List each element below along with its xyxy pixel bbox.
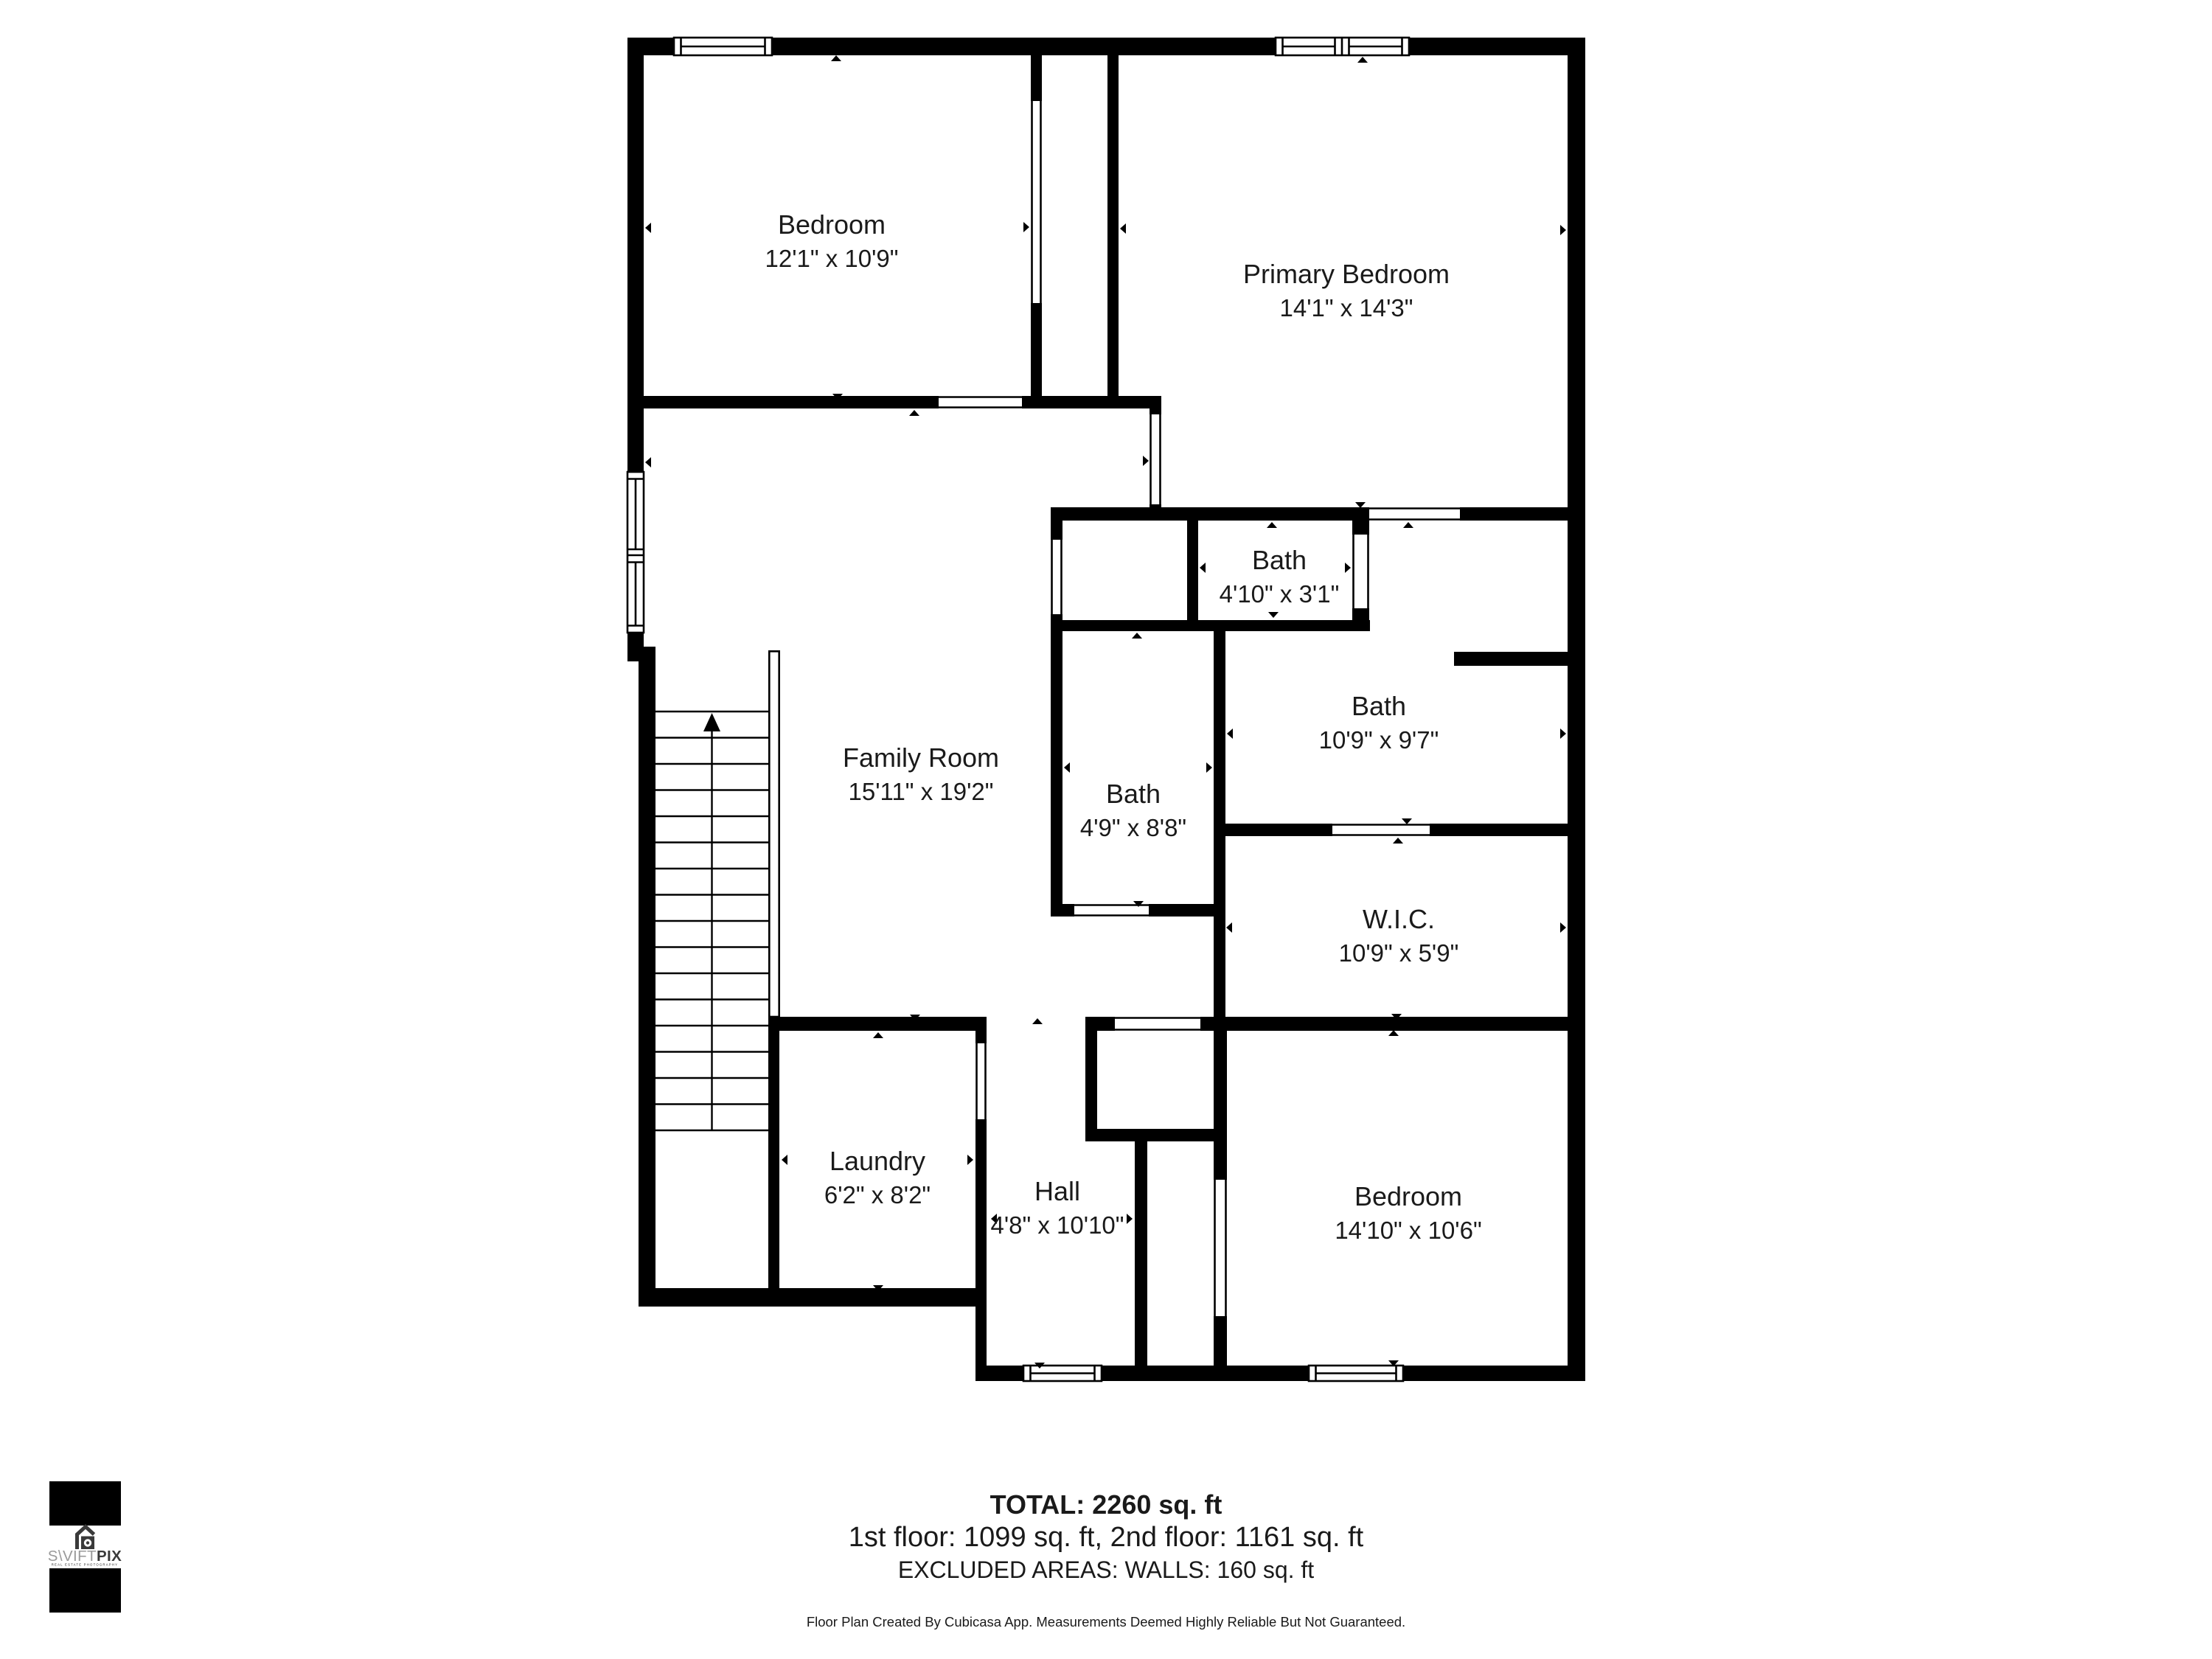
svg-text:1st floor: 1099 sq. ft, 2nd fl: 1st floor: 1099 sq. ft, 2nd floor: 1161 … <box>849 1522 1364 1553</box>
svg-text:15'11" x 19'2": 15'11" x 19'2" <box>849 778 994 805</box>
svg-text:Floor Plan Created By Cubicasa: Floor Plan Created By Cubicasa App. Meas… <box>807 1614 1405 1630</box>
svg-text:4'9" x 8'8": 4'9" x 8'8" <box>1080 814 1186 841</box>
svg-text:10'9" x 9'7": 10'9" x 9'7" <box>1319 726 1439 754</box>
svg-text:W.I.C.: W.I.C. <box>1363 904 1435 934</box>
svg-text:Laundry: Laundry <box>829 1146 925 1176</box>
svg-text:Bath: Bath <box>1352 691 1406 721</box>
svg-text:Family Room: Family Room <box>843 742 999 773</box>
svg-text:TOTAL: 2260 sq. ft: TOTAL: 2260 sq. ft <box>990 1489 1222 1520</box>
svg-text:Bath: Bath <box>1252 545 1307 575</box>
svg-text:4'8" x 10'10": 4'8" x 10'10" <box>991 1211 1124 1239</box>
svg-text:14'1" x 14'3": 14'1" x 14'3" <box>1280 294 1413 321</box>
svg-text:Primary Bedroom: Primary Bedroom <box>1243 259 1450 289</box>
svg-text:10'9" x 5'9": 10'9" x 5'9" <box>1339 939 1459 967</box>
svg-text:14'10" x 10'6": 14'10" x 10'6" <box>1335 1217 1481 1244</box>
svg-text:Bedroom: Bedroom <box>778 209 886 240</box>
svg-text:4'10" x 3'1": 4'10" x 3'1" <box>1220 580 1340 608</box>
svg-text:6'2" x 8'2": 6'2" x 8'2" <box>824 1181 931 1208</box>
svg-text:Bath: Bath <box>1106 779 1161 809</box>
svg-text:Hall: Hall <box>1034 1176 1080 1206</box>
svg-text:REAL ESTATE PHOTOGRAPHY: REAL ESTATE PHOTOGRAPHY <box>52 1563 118 1567</box>
svg-text:Bedroom: Bedroom <box>1354 1181 1462 1211</box>
svg-text:EXCLUDED AREAS: WALLS: 160 sq.: EXCLUDED AREAS: WALLS: 160 sq. ft <box>898 1557 1314 1583</box>
svg-text:12'1" x 10'9": 12'1" x 10'9" <box>765 245 899 272</box>
